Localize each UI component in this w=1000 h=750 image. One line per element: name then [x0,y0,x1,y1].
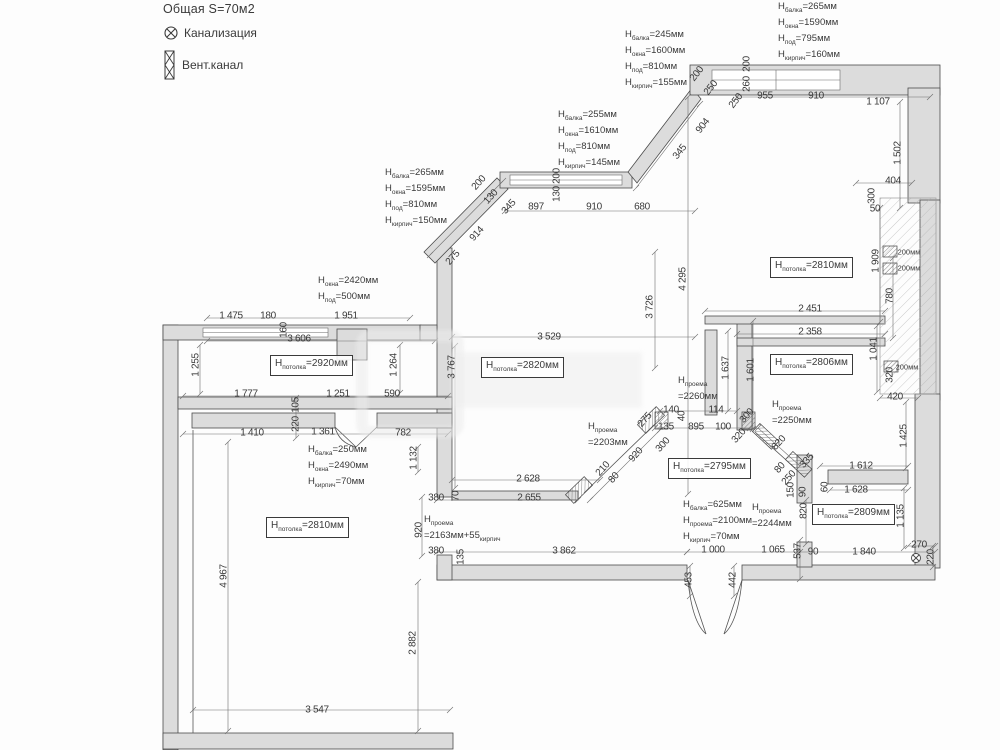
sewer-label: Канализация [184,26,257,40]
watermark [356,330,464,438]
opening-posts [565,407,811,504]
windows [203,70,840,337]
vent-channel-label: Вент.канал [182,58,243,72]
sewer-symbol [912,554,921,563]
floor-plan-canvas: Общая S=70м2 Канализация Вент.канал 2002… [0,0,1000,750]
total-area-label: Общая S=70м2 [163,2,257,16]
legend: Общая S=70м2 Канализация Вент.канал [163,2,257,80]
watermark [452,352,642,408]
vent-channel-icon [163,50,177,80]
sewer-icon [163,25,179,41]
